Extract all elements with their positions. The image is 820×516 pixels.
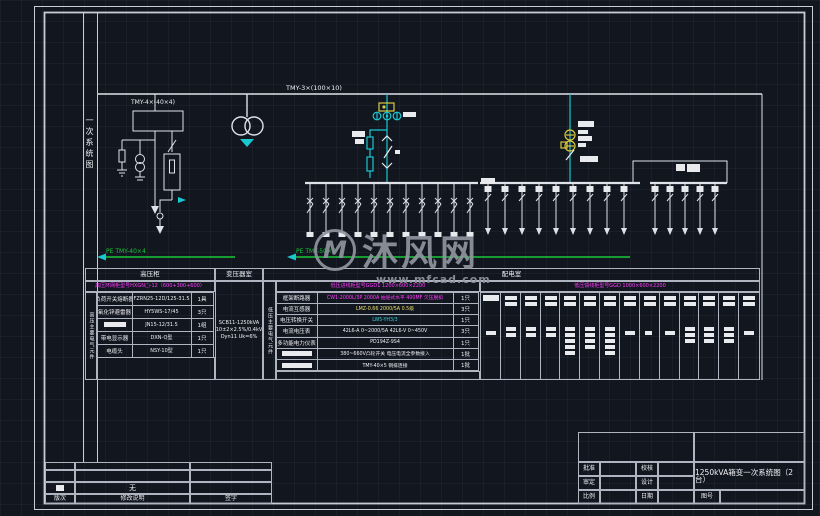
feeder-column bbox=[541, 293, 561, 379]
drawing-title: 1250kVA箱变一次系统图（2台） bbox=[694, 462, 805, 490]
hv-bus-label: TMY-4×(40×4) bbox=[131, 100, 175, 107]
component-name: 带电显示器 bbox=[97, 331, 133, 345]
empty-cell bbox=[694, 432, 805, 462]
table-row: 负荷开关熔断器 FZRN25-12D/125-31.5 1具 bbox=[97, 292, 216, 305]
field-value bbox=[600, 490, 636, 504]
field-value bbox=[658, 462, 694, 476]
revision-header-description: 修改说明 bbox=[75, 494, 190, 504]
component-spec: NSY-10型 bbox=[132, 344, 192, 358]
room-header-transformer: 变压器室 bbox=[215, 268, 263, 281]
empty-cell bbox=[75, 462, 190, 470]
field-value bbox=[600, 476, 636, 490]
empty-cell bbox=[45, 462, 75, 470]
hv-cabinet-symbols bbox=[117, 94, 186, 234]
transformer-spec-line: Dyn11 Uk=6% bbox=[221, 335, 258, 340]
lv-bus-2 bbox=[480, 178, 640, 235]
empty-cell bbox=[75, 470, 190, 482]
feeder-column bbox=[481, 293, 501, 379]
field-label-date: 日期 bbox=[636, 490, 658, 504]
revision-header-signature: 签字 bbox=[190, 494, 272, 504]
table-row: 380~660V凸轮开关 电压电流全参数接入 1批 bbox=[276, 348, 481, 359]
feeder-column bbox=[560, 293, 580, 379]
field-label-design: 设计 bbox=[636, 476, 658, 490]
feeder-column bbox=[719, 293, 739, 379]
component-spec: JN15-12/31.5 bbox=[132, 318, 192, 332]
component-name: 电缆头 bbox=[97, 344, 133, 358]
component-spec: FZRN25-12D/125-31.5 bbox=[132, 292, 192, 306]
field-value bbox=[658, 490, 694, 504]
table-row: JN15-12/31.5 1组 bbox=[97, 318, 216, 331]
table-row: 电缆头 NSY-10型 1只 bbox=[97, 344, 216, 357]
table-row: 带电显示器 DXN-Q型 1只 bbox=[97, 331, 216, 344]
revision-header-version: 版次 bbox=[45, 494, 75, 504]
component-name bbox=[97, 318, 133, 332]
transformer-spec: SCB11-1250kVA 10±2×2.5%/0.4kV Dyn11 Uk=6… bbox=[215, 281, 263, 380]
feeder-column bbox=[620, 293, 640, 379]
empty-cell bbox=[578, 432, 694, 462]
component-qty: 1具 bbox=[191, 292, 214, 306]
table-row: 电流互感器 LMZ-0.66 2000/5A 0.5级 3只 bbox=[276, 303, 481, 314]
feeder-model-row: 低压馈线柜型号GGD 1000×600×2200 bbox=[480, 281, 760, 292]
transformer-spec-line: SCB11-1250kVA bbox=[219, 321, 259, 326]
transformer-symbol bbox=[232, 94, 263, 147]
component-spec: DXN-Q型 bbox=[132, 331, 192, 345]
field-value bbox=[658, 476, 694, 490]
lv-incoming-2 bbox=[561, 94, 598, 183]
table-row: 电压转换开关 LW5-YH3/3 1只 bbox=[276, 315, 481, 326]
feeder-column bbox=[699, 293, 719, 379]
component-name bbox=[276, 359, 318, 371]
field-value bbox=[720, 490, 805, 504]
margin-section-label: 一次系统图 bbox=[84, 116, 95, 171]
feeder-column bbox=[640, 293, 660, 379]
field-label-review: 审定 bbox=[578, 476, 600, 490]
component-qty: 1只 bbox=[191, 344, 214, 358]
feeder-columns bbox=[480, 292, 760, 380]
pe-left-label: PE TMY-40×4 bbox=[106, 249, 146, 256]
hv-side-label: 高压主要电气元件 bbox=[85, 292, 97, 380]
mfcad-watermark: M 沐风网 www.mfcad.com bbox=[314, 224, 491, 286]
field-value bbox=[600, 462, 636, 476]
table-row: 氧化锌避雷器 HY5WS-17/45 3只 bbox=[97, 305, 216, 318]
lv-bus-3 bbox=[633, 161, 727, 235]
mfcad-logo-icon: M bbox=[314, 229, 356, 271]
component-qty: 1只 bbox=[191, 331, 214, 345]
feeder-column bbox=[680, 293, 700, 379]
table-row: 多功能电力仪表 PD194Z-9S4 1只 bbox=[276, 337, 481, 348]
title-block: 批准 校核 审定 设计 比例 日期 1250kVA箱变一次系统图（2台） 图号 bbox=[578, 432, 805, 504]
drawing-canvas: TMY-4×(40×4) TMY-3×(100×10) PE TMY-40×4 … bbox=[0, 0, 820, 516]
feeder-column bbox=[501, 293, 521, 379]
revision-table: 无 版次 修改说明 签字 bbox=[45, 462, 272, 504]
hv-model-row: 高压环网柜型号HXGN□-12（600+300+600） bbox=[85, 281, 215, 292]
field-label-approve: 批准 bbox=[578, 462, 600, 476]
empty-cell bbox=[190, 470, 272, 482]
feeder-column bbox=[521, 293, 541, 379]
room-header-hv: 高压柜 bbox=[85, 268, 215, 281]
empty-cell bbox=[190, 482, 272, 494]
transformer-spec-line: 10±2×2.5%/0.4kV bbox=[216, 328, 263, 333]
component-qty: 3只 bbox=[191, 305, 214, 319]
field-label-check: 校核 bbox=[636, 462, 658, 476]
lv-incoming-1 bbox=[352, 94, 416, 183]
feeder-column bbox=[660, 293, 680, 379]
revision-mark-cell bbox=[45, 482, 75, 494]
field-label-scale: 比例 bbox=[578, 490, 600, 504]
feeder-column bbox=[580, 293, 600, 379]
main-bus-label: TMY-3×(100×10) bbox=[286, 85, 342, 92]
feeder-column bbox=[739, 293, 759, 379]
lv-component-rows: 框架断路器 CW1-2000L/3P 2000A 抽屉式水平 400MF 欠压脱… bbox=[276, 292, 481, 371]
component-spec: TMY-40×5 铜排连接 bbox=[317, 359, 454, 371]
component-spec: HY5WS-17/45 bbox=[132, 305, 192, 319]
empty-cell bbox=[276, 371, 480, 380]
component-qty: 1批 bbox=[453, 359, 479, 371]
empty-cell bbox=[45, 470, 75, 482]
revision-none-cell: 无 bbox=[75, 482, 190, 494]
lv-side-label: 低压主要电气元件 bbox=[263, 281, 276, 380]
watermark-url-text: www.mfcad.com bbox=[376, 273, 491, 286]
field-label-drawing-no: 图号 bbox=[694, 490, 720, 504]
table-row: 电流电压表 42L6-A 0~2000/5A 42L6-V 0~450V 3只 bbox=[276, 326, 481, 337]
component-name: 负荷开关熔断器 bbox=[97, 292, 133, 306]
hv-component-rows: 负荷开关熔断器 FZRN25-12D/125-31.5 1具 氧化锌避雷器 HY… bbox=[97, 292, 216, 357]
component-qty: 1组 bbox=[191, 318, 214, 332]
empty-cell bbox=[190, 462, 272, 470]
table-row: TMY-40×5 铜排连接 1批 bbox=[276, 360, 481, 371]
table-row: 框架断路器 CW1-2000L/3P 2000A 抽屉式水平 400MF 欠压脱… bbox=[276, 292, 481, 303]
feeder-column bbox=[600, 293, 620, 379]
empty-cell bbox=[97, 357, 215, 380]
watermark-brand-text: 沐风网 bbox=[362, 224, 479, 276]
component-name: 氧化锌避雷器 bbox=[97, 305, 133, 319]
